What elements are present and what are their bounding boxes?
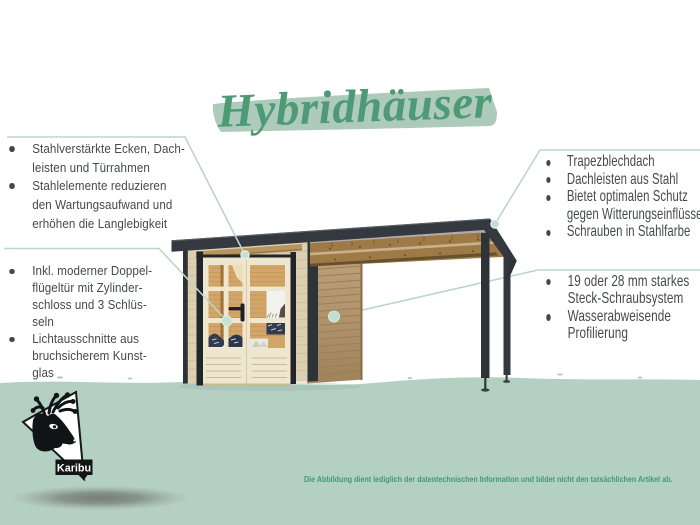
- svg-text:Karibu: Karibu: [57, 462, 91, 474]
- svg-text:Hybridhäuser: Hybridhäuser: [216, 76, 494, 138]
